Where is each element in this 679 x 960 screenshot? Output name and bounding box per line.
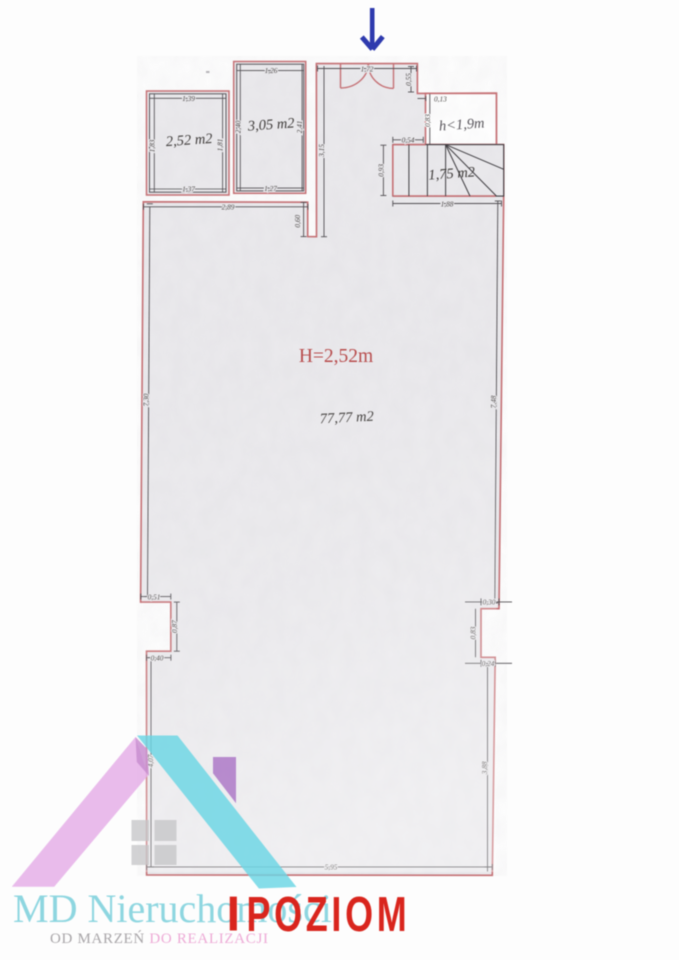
svg-text:POZIOM: POZIOM <box>247 887 411 942</box>
svg-text:I: I <box>227 888 241 942</box>
